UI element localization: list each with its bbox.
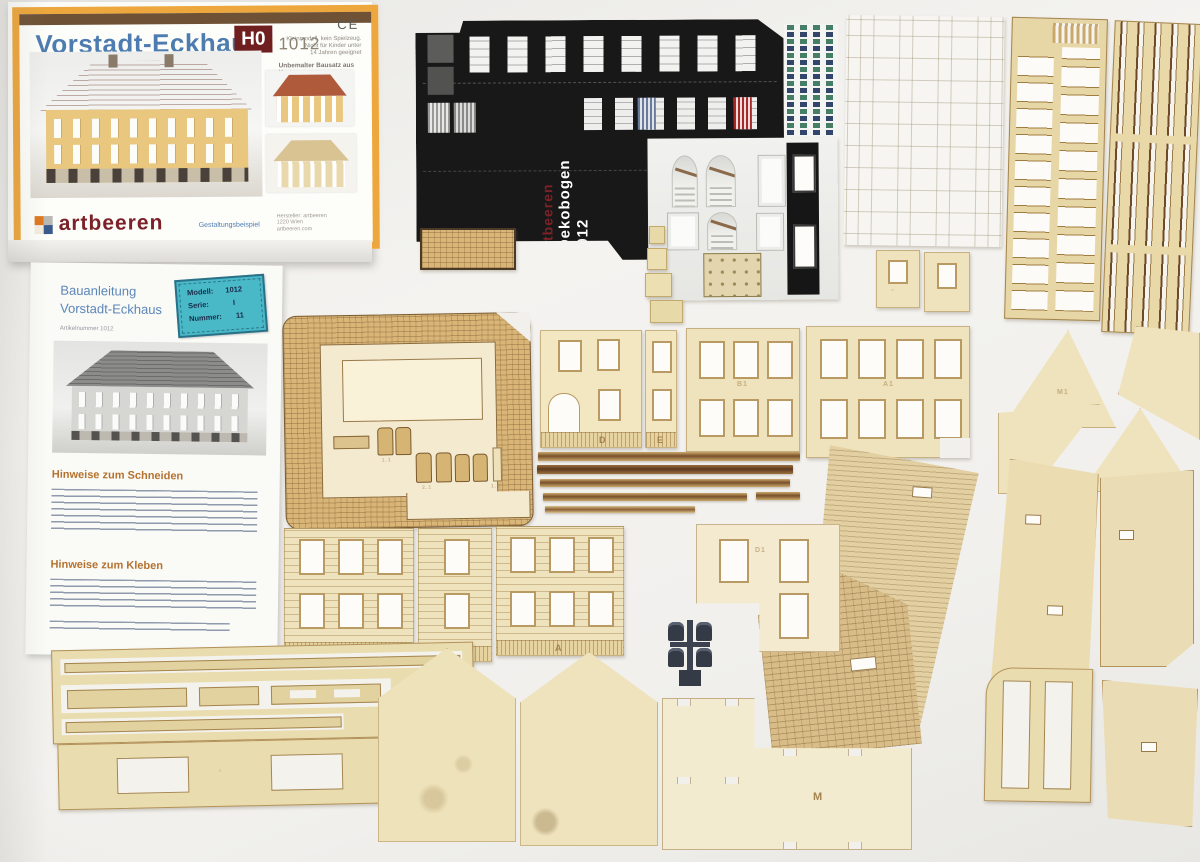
part-code: 1.2 — [491, 483, 501, 489]
manual-photo-facade — [72, 386, 248, 442]
window-cutout — [377, 593, 403, 629]
small-part-bar — [333, 436, 369, 450]
slot-cutout — [290, 690, 316, 699]
window-cutout — [767, 399, 793, 437]
barrel-part — [455, 454, 470, 482]
window-cutout — [338, 593, 364, 629]
window-cutout — [652, 389, 672, 421]
gable-wall-blank — [520, 652, 658, 846]
wall-part-B: B — [284, 528, 414, 658]
paragraph-placeholder — [51, 489, 258, 537]
small-card-offcut — [650, 300, 683, 323]
laser-fret-trim-strips — [1101, 20, 1200, 336]
window-cutout — [549, 591, 575, 627]
window-sticker-columns — [784, 24, 838, 136]
instruction-sheet: Bauanleitung Vorstadt-Eckhaus Artikelnum… — [25, 262, 282, 657]
fret-channel — [60, 651, 462, 675]
brand-pixel-icon — [35, 216, 53, 234]
barrel-part — [436, 452, 453, 482]
house-chimney — [164, 54, 173, 67]
arch-cutout — [548, 393, 580, 434]
edge-notch — [848, 749, 862, 756]
part-label: B1 — [737, 381, 748, 388]
dekobogen-caption: artbeeren Dekobogen 1012 — [538, 132, 593, 256]
wall-part-D: D — [540, 330, 642, 448]
black-wall-strip — [786, 142, 819, 294]
window-cutout — [767, 341, 793, 379]
house-roof — [39, 59, 255, 116]
box-warning: Kleinmodell, kein Spielzeug. Nicht für K… — [281, 36, 361, 58]
ridge-strip — [545, 506, 695, 513]
box-fineprint: Hersteller: artbeeren 1220 Wien artbeere… — [277, 213, 327, 233]
window-cutout — [598, 389, 621, 421]
fret-bar — [67, 688, 187, 710]
lamp-housing — [696, 622, 712, 641]
box-thumbnail-painted — [266, 70, 354, 127]
manual-title-line1: Bauanleitung — [60, 283, 136, 299]
window-cutout — [549, 537, 575, 573]
dekobogen-title: Dekobogen 1012 — [556, 159, 592, 256]
window-cutout — [793, 154, 816, 192]
small-card-offcut — [649, 226, 665, 244]
window-cutout — [719, 539, 749, 583]
part-label: A — [555, 643, 563, 653]
sticker-model-label: Modell: — [187, 286, 214, 297]
section-title-cutting: Hinweise zum Schneiden — [52, 469, 184, 483]
staircase-arch-print — [706, 155, 736, 207]
striped-window-print — [454, 103, 476, 133]
roof-side-panel — [1102, 680, 1198, 827]
lamp-housing — [668, 622, 684, 641]
window-cutout — [444, 593, 470, 629]
part-code: ▫ — [219, 768, 223, 775]
warning-line: 14 Jahren geeignet — [281, 50, 361, 58]
barrel-part — [395, 427, 411, 455]
cut-tab — [427, 35, 453, 63]
door-print — [667, 212, 699, 250]
window-cutout — [299, 593, 325, 629]
slot-cutout — [850, 656, 877, 672]
window-cutout — [558, 340, 582, 372]
window-cutout — [588, 537, 614, 573]
edge-notch — [783, 749, 797, 756]
section-title-gluing: Hinweise zum Kleben — [50, 559, 163, 573]
edge-notch — [677, 699, 691, 706]
brand-name: artbeeren — [59, 211, 164, 236]
corner-step-cut — [940, 438, 970, 458]
manual-title-line2: Vorstadt-Eckhaus — [60, 301, 162, 317]
base-corner-cut — [496, 312, 531, 343]
fret-channel — [61, 678, 392, 713]
laser-fret-window-frames — [1004, 17, 1108, 321]
box-thumbnail-card — [266, 134, 356, 193]
serial-sticker: Modell: 1012 Serie: I Nummer: 11 — [174, 274, 268, 338]
staircase-arch-print — [672, 155, 698, 207]
small-card-offcut — [647, 248, 667, 270]
part-label: E — [657, 435, 664, 445]
fret-crossbar — [1111, 133, 1197, 145]
scale-badge: H0 — [234, 25, 272, 52]
ridge-strip — [543, 493, 747, 501]
thumb-roof — [273, 140, 349, 161]
door-opening — [1001, 680, 1031, 788]
door-print — [756, 213, 784, 251]
door-print — [758, 155, 786, 207]
cobblestone-print — [420, 228, 516, 270]
design-note: Gestaltungsbeispiel — [199, 222, 260, 229]
window-cutout — [733, 341, 759, 379]
base-inner-cutout-ext — [406, 491, 530, 520]
storefront-band — [72, 431, 248, 442]
facade-window-band — [54, 118, 240, 138]
window-frame-print-sheet — [843, 15, 1004, 247]
fineprint-line: artbeeren.com — [277, 226, 327, 233]
wall-part-D1: D1 — [696, 524, 840, 652]
part-label: M1 — [1057, 389, 1069, 396]
wall-part-A1: A1 — [806, 326, 970, 458]
frame-column — [1055, 47, 1100, 312]
sprue-base — [679, 670, 701, 686]
window-cutout — [444, 539, 470, 575]
fret-comb — [1052, 23, 1099, 44]
wall-part-A: A — [496, 526, 624, 656]
plinth-band — [541, 432, 641, 447]
thumb-roof — [273, 74, 347, 96]
lamp-housing — [668, 648, 684, 667]
ridge-strip — [540, 479, 790, 487]
ridge-strip — [538, 452, 800, 461]
box-lid-label: Vorstadt-Eckhaus H0 1012 CE Kleinmodell,… — [12, 5, 380, 252]
fret-bar — [64, 655, 460, 673]
lamp-housing — [696, 648, 712, 667]
slot-cutout — [1025, 514, 1041, 525]
facade-window-band — [79, 392, 241, 409]
plastic-sprue-lamps — [666, 620, 714, 688]
part-label: A1 — [883, 381, 894, 388]
edge-notch — [848, 842, 862, 849]
interior-print-sheet — [647, 137, 838, 300]
window-cutout — [597, 339, 620, 371]
base-plate: 1.1 2.1 1.2 — [282, 312, 534, 530]
window-cutout — [733, 399, 759, 437]
box-cover-photo — [29, 51, 262, 199]
window-opening — [271, 753, 344, 790]
facade-window-band — [54, 144, 240, 164]
striped-window-print — [428, 103, 450, 133]
window-cutout — [338, 539, 364, 575]
window-cutout — [896, 339, 924, 379]
paragraph-placeholder — [50, 579, 256, 614]
manual-photo — [52, 341, 268, 456]
ridge-strip — [537, 465, 793, 474]
sticker-number-value: 11 — [236, 310, 245, 320]
frame-column — [1011, 54, 1054, 311]
fold-line — [423, 81, 776, 84]
window-cutout — [510, 537, 536, 573]
window-cutout — [699, 341, 725, 379]
fret-channel — [62, 713, 344, 735]
facade-window-band — [79, 414, 241, 431]
staircase-arch-print — [707, 212, 737, 250]
manual-article-line: Artikelnummer 1012 — [60, 326, 114, 333]
base-panel — [342, 358, 483, 422]
edge-notch — [725, 777, 739, 784]
product-box: Vorstadt-Eckhaus H0 1012 CE Kleinmodell,… — [8, 2, 372, 262]
ornament-panel-print — [703, 253, 761, 297]
thumb-facade — [277, 161, 346, 188]
part-label: D — [599, 435, 607, 445]
paragraph-placeholder — [50, 621, 230, 636]
window-cutout — [858, 339, 886, 379]
part-label: M — [813, 791, 823, 803]
edge-notch — [725, 699, 739, 706]
slot-cutout — [1141, 742, 1157, 752]
ce-mark: CE — [337, 17, 359, 32]
fret-bar — [199, 686, 259, 706]
window-cutout — [937, 263, 957, 289]
sticker-model-value: 1012 — [225, 284, 242, 294]
window-cutout — [934, 339, 962, 379]
door-opening — [1043, 681, 1073, 789]
window-cutout — [820, 339, 848, 379]
slot-cutout — [334, 689, 360, 698]
slot-cutout — [912, 486, 933, 498]
part-code: 2.1 — [422, 485, 432, 491]
sticker-series-label: Serie: — [188, 300, 209, 311]
part-code: ▫ — [891, 287, 894, 294]
window-cutout — [377, 539, 403, 575]
window-cutout — [858, 399, 886, 439]
barrel-part — [416, 453, 433, 483]
box-side-edge — [8, 240, 372, 262]
window-mullions — [469, 35, 769, 73]
kit-photo: Vorstadt-Eckhaus H0 1012 CE Kleinmodell,… — [0, 0, 1200, 862]
manual-photo-roof — [66, 350, 255, 391]
small-card-offcut — [645, 273, 672, 297]
window-cutout — [652, 341, 672, 373]
storefront-band — [47, 167, 249, 183]
window-cutout — [299, 539, 325, 575]
sprue-runner — [670, 642, 710, 647]
window-cutout — [888, 260, 908, 284]
slot-cutout — [1047, 605, 1063, 616]
edge-notch — [677, 777, 691, 784]
roof-side-panel — [1100, 470, 1194, 667]
barrel-part — [473, 454, 488, 482]
window-cutout — [896, 399, 924, 439]
dekobogen-brand: artbeeren — [539, 183, 555, 256]
printed-window-row — [469, 35, 769, 73]
window-cutout — [820, 399, 848, 439]
window-cutout — [793, 224, 816, 268]
window-cutout — [510, 591, 536, 627]
edge-notch — [783, 842, 797, 849]
fret-bar — [271, 684, 381, 705]
cut-tab — [428, 67, 454, 95]
fret-bar — [66, 716, 342, 733]
window-cutout — [588, 591, 614, 627]
window-opening — [117, 757, 190, 794]
window-cutout — [779, 593, 809, 639]
window-cutout — [934, 399, 962, 439]
sprue-runner — [687, 620, 693, 674]
window-cutout — [779, 539, 809, 583]
small-wall-piece: ▫ — [876, 250, 920, 308]
curtain-window-blue — [638, 98, 656, 130]
part-label: D1 — [755, 547, 766, 554]
curtain-window-red — [734, 97, 752, 129]
small-wall-piece — [924, 252, 970, 312]
part-code: 1.1 — [382, 457, 392, 463]
stick-part — [492, 447, 502, 481]
house-facade — [46, 109, 248, 183]
door-frame-fret — [984, 667, 1093, 803]
window-cutout — [699, 399, 725, 437]
house-chimney — [108, 54, 117, 67]
barrel-part — [377, 427, 393, 455]
wall-part-E: E — [645, 330, 677, 448]
fret-crossbar — [1106, 244, 1192, 256]
box-top-band — [19, 12, 371, 25]
scale-badge-text: H0 — [241, 29, 265, 50]
thumb-facade — [276, 96, 343, 122]
slot-cutout — [1119, 530, 1134, 540]
ridge-strip — [756, 492, 800, 500]
wall-part-B1: B1 — [686, 328, 800, 452]
